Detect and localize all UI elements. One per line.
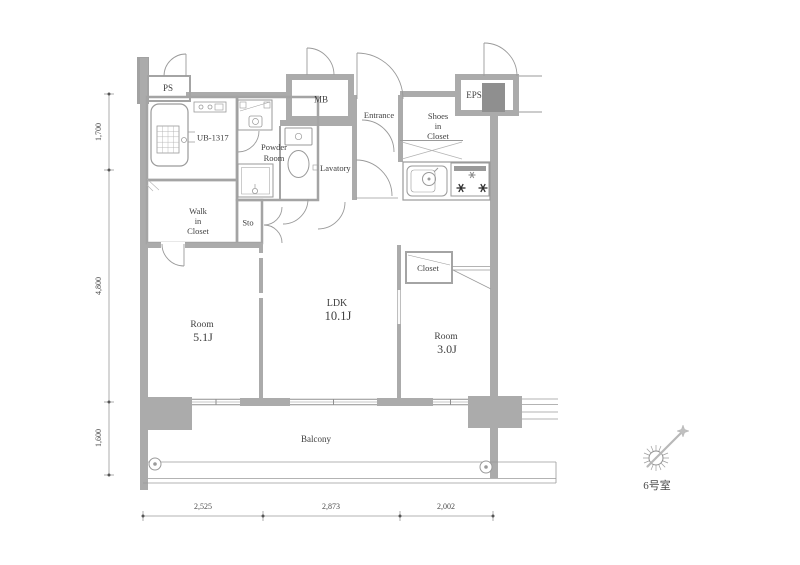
label-closet: Closet <box>417 263 439 273</box>
label-room30-2: 3.0J <box>437 342 457 356</box>
label-mb: MB <box>314 95 328 105</box>
drain-icon-right <box>480 461 492 473</box>
dimension-left: 1,700 4,800 1,600 <box>94 93 114 477</box>
label-lavatory: Lavatory <box>320 163 351 173</box>
wall-bottom-b <box>377 398 433 406</box>
mb-door <box>307 48 334 75</box>
bathroom-door <box>238 131 259 152</box>
label-ldk-2: 10.1J <box>325 309 352 323</box>
label-room51-1: Room <box>190 320 214 330</box>
label-powder-1: Powder <box>261 142 287 152</box>
wall-right <box>490 112 498 398</box>
room-labels: PS UB-1317 Powder Room MB Entrance Shoes… <box>163 83 482 444</box>
dim-bottom-1: 2,873 <box>322 502 340 511</box>
compass-needle <box>647 433 681 467</box>
wall-top-b <box>400 91 458 97</box>
toilet-icon <box>285 128 312 178</box>
hall-door-lower <box>356 160 398 198</box>
window-room51 <box>192 399 240 405</box>
vanity-icon <box>238 100 272 130</box>
window-room30 <box>433 399 468 405</box>
eps-door <box>484 43 517 76</box>
balcony-divider-lines <box>522 399 558 419</box>
dim-left-2: 1,600 <box>94 429 103 447</box>
hall-door-upper <box>362 120 394 152</box>
powder-room-door <box>283 199 308 224</box>
shower-shelf-icon <box>194 102 226 112</box>
dimension-bottom: 2,525 2,873 2,002 <box>142 502 495 521</box>
entrance-door <box>357 53 403 99</box>
eps-shaft <box>482 83 505 112</box>
wall-hall-right <box>398 95 403 162</box>
lavatory-door <box>318 202 345 229</box>
dim-bottom-2: 2,002 <box>437 502 455 511</box>
washing-machine-icon <box>238 164 273 197</box>
column-bottom-right <box>468 396 522 428</box>
label-shoes-1: Shoes <box>428 111 448 121</box>
label-storage: Sto <box>242 218 253 228</box>
stove-burner-icon-left <box>457 184 466 192</box>
storage-doors <box>264 207 282 243</box>
label-wic-2: in <box>195 216 202 226</box>
label-wic-1: Walk <box>189 206 207 216</box>
label-powder-2: Room <box>264 153 285 163</box>
kitchen-sink-icon <box>407 166 447 196</box>
exterior-walls <box>137 57 542 490</box>
ps-door <box>164 54 186 76</box>
label-ps: PS <box>163 83 173 93</box>
column-bottom-left <box>140 397 192 430</box>
label-ldk-1: LDK <box>327 298 348 309</box>
ub-label-marker <box>188 132 195 142</box>
wall-bottom-a <box>240 398 290 406</box>
label-balcony: Balcony <box>301 434 331 444</box>
wall-room51-ldk <box>259 245 263 398</box>
label-entrance: Entrance <box>364 110 394 120</box>
compass-unit-label: 6号室 <box>643 478 671 492</box>
stove-burner-icon-back <box>469 172 476 178</box>
shoes-closet-cross <box>402 142 462 159</box>
bathtub-icon <box>151 104 188 166</box>
dim-left-1: 4,800 <box>94 277 103 295</box>
window-ldk <box>290 399 377 405</box>
label-room51-2: 5.1J <box>193 330 213 344</box>
label-shoes-3: Closet <box>427 131 449 141</box>
label-wic-3: Closet <box>187 226 209 236</box>
label-shoes-2: in <box>435 121 442 131</box>
floor-plan: PS UB-1317 Powder Room MB Entrance Shoes… <box>0 0 800 565</box>
stove-icon <box>451 163 489 196</box>
compass-icon: 6号室 <box>643 425 689 492</box>
label-eps: EPS <box>466 90 482 100</box>
drain-icon-left <box>149 458 161 470</box>
dim-left-0: 1,700 <box>94 123 103 141</box>
label-room30-1: Room <box>434 332 458 342</box>
label-bath: UB-1317 <box>197 133 229 143</box>
stove-burner-icon-right <box>479 184 488 192</box>
dim-bottom-0: 2,525 <box>194 502 212 511</box>
